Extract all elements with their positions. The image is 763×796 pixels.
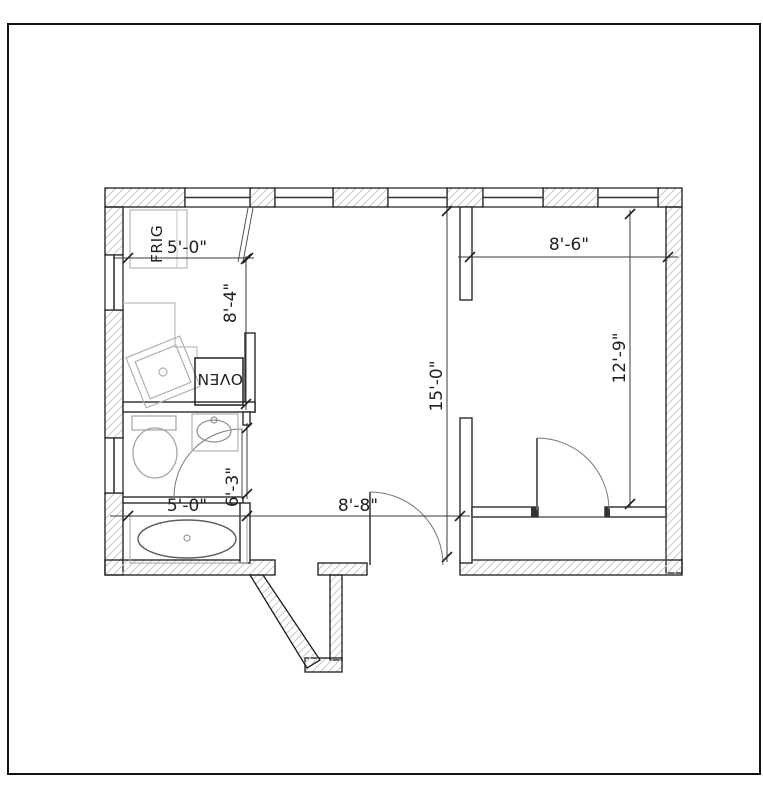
vestibule-right-wall [330,575,342,660]
top-wall-segment [333,188,388,207]
right-wall [666,207,682,573]
vestibule-cap-wall [318,563,367,575]
kitchen-door-leaf [238,208,248,262]
floor-plan-svg: 5'-0" 8'-4" 15'-0" 8'-6" 12'-9" 6'-3" 5'… [0,0,763,796]
closet-interior [472,517,666,560]
dim-right-room-depth: 12'-9" [610,332,630,383]
bathtub-basin [138,520,236,558]
fridge-label: FRIG [148,225,166,263]
kitchen-south-wall [123,402,255,412]
sheet: 5'-0" 8'-4" 15'-0" 8'-6" 12'-9" 6'-3" 5'… [0,0,763,796]
entry-door-arc [370,492,443,565]
bottom-wall-right [460,560,682,575]
dim-bath-door: 6'-3" [223,467,243,507]
top-wall-segment [105,188,185,207]
closet-wall-left [472,507,538,517]
dim-bath-width: 5'-0" [167,496,207,516]
oven-label: OVEN [197,370,243,388]
closet-door-arc [537,438,609,510]
dim-living-depth: 15'-0" [427,360,447,411]
dim-right-room-width: 8'-6" [549,235,589,255]
top-wall-segment [543,188,598,207]
top-wall-segment [658,188,682,207]
central-wall-upper [460,207,472,300]
bathtub-drain [184,535,190,541]
closet-wall-right [605,507,666,517]
dim-kitchen-width: 5'-0" [167,238,207,258]
vestibule-angled-wall [250,575,320,668]
dim-hall-width: 8'-8" [338,496,378,516]
dim-kitchen-depth: 8'-4" [221,283,241,323]
bathtub-deck [130,516,247,563]
central-wall-lower [460,418,472,563]
tub-room-east-wall [240,503,250,563]
toilet-bowl [133,428,177,478]
left-wall-segment [105,310,123,438]
windows [105,188,658,493]
top-wall-segment [250,188,275,207]
top-wall-segment [447,188,483,207]
left-wall-segment [105,207,123,255]
